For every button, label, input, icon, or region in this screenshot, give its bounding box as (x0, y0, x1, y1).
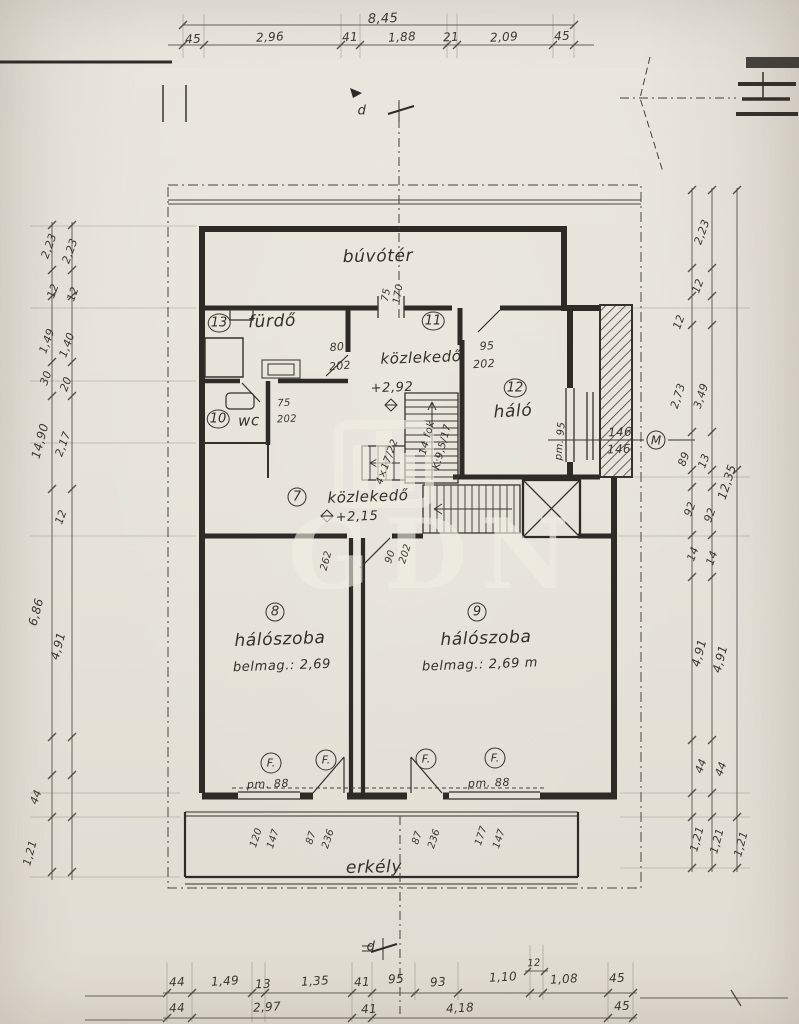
dim-right-10: 92 (702, 506, 717, 523)
room-buvoter-label: búvótér (343, 248, 414, 266)
plan-labels-layer: 8,45452,96411,88212,0945dd2,232,2312121,… (0, 0, 799, 1024)
room-13-number: 13 (208, 314, 231, 333)
dim-left-4: 12 (65, 285, 80, 302)
dim-262: 262 (320, 550, 335, 572)
room-9-label: hálószoba (440, 629, 532, 649)
window-marker-F-4: F. (485, 748, 506, 769)
level-mark-215: +2,15 (335, 510, 378, 524)
dim-right-3: 12 (671, 313, 686, 330)
door-95-width: 95 (479, 340, 494, 352)
dim-top-5: 21 (443, 31, 459, 44)
window-dim-147a: 147 (266, 828, 282, 850)
dim-right-19: 1,21 (732, 830, 749, 858)
dim-right-5: 3,49 (692, 382, 710, 410)
door-75-width: 75 (277, 399, 291, 410)
dim-left-5: 1,49 (37, 327, 56, 355)
dim-top-4: 1,88 (388, 30, 417, 43)
room-8-note: belmag.: 2,69 (233, 658, 332, 674)
dim-bottom1-5: 41 (354, 976, 370, 989)
dim-left-11: 12 (53, 508, 68, 525)
room-7-label: közlekedő (327, 488, 409, 506)
dim-top-6: 2,09 (490, 30, 519, 43)
dim-bottom1-6: 95 (388, 973, 404, 986)
room-7-number: 7 (288, 488, 307, 507)
shaft-dim-height: 170 (392, 283, 405, 304)
window-146-width: 146 (608, 426, 632, 439)
window-sill-88-right: pm. 88 (468, 777, 511, 789)
dim-left-12: 6,86 (27, 597, 46, 627)
dim-top-2: 2,96 (256, 30, 285, 43)
room-12-number: 12 (504, 379, 527, 398)
room-9-number: 9 (468, 603, 487, 622)
dim-bottom2-2: 2,97 (253, 1000, 282, 1013)
dim-right-8: 12,35 (716, 463, 738, 501)
dim-top-3: 41 (342, 31, 358, 44)
room-11-label: közlekedő (380, 349, 462, 367)
room-erkely-label: erkély (346, 859, 402, 877)
room-8-number: 8 (266, 603, 285, 622)
dim-left-7: 30 (38, 369, 53, 386)
window-marker-F-1: F. (261, 753, 282, 774)
dim-bottom2-4: 4,18 (446, 1001, 475, 1014)
dim-bottom2-1: 44 (169, 1002, 185, 1015)
scanned-floor-plan: GDN 8,45452,96411,88212,0945dd2,232,2312… (0, 0, 799, 1024)
window-dim-177: 177 (474, 825, 490, 847)
window-146-height: 146. (607, 443, 635, 456)
dim-left-13: 4,91 (49, 631, 68, 661)
dim-right-4: 2,73 (669, 382, 687, 410)
dim-bottom1-8: 1,10 (489, 970, 518, 983)
dim-left-9: 14,90 (30, 422, 51, 460)
dim-right-15: 44 (693, 757, 708, 774)
dim-bottom1-3: 13 (255, 978, 271, 991)
door-90-height: 202 (398, 543, 414, 565)
window-marker-M: M (647, 431, 666, 450)
window-sill-88-left: pm. 88 (247, 778, 290, 790)
dim-right-11: 14 (685, 545, 700, 562)
door-80-height: 202 (329, 360, 352, 373)
dim-right-6: 89 (676, 450, 691, 467)
window-marker-F-3: F. (416, 749, 437, 770)
dim-right-14: 4,91 (711, 644, 730, 674)
window-sill-95: pm. 95 (554, 421, 567, 461)
section-mark-bottom-letter: d (367, 941, 376, 954)
level-mark-292: +2,92 (370, 381, 413, 395)
room-11-number: 11 (422, 312, 445, 331)
door-dim-236b: 236 (427, 828, 443, 850)
door-95-height: 202 (473, 358, 495, 370)
dim-right-17: 1,21 (688, 825, 705, 853)
section-mark-top-letter: d (358, 105, 367, 118)
dim-bottom2-5: 45 (614, 1000, 630, 1013)
window-marker-F-2: F. (316, 750, 337, 771)
room-10-number: 10 (207, 410, 230, 429)
door-dim-236a: 236 (321, 828, 337, 850)
dim-right-12: 14 (704, 549, 719, 566)
dim-right-9: 92 (682, 500, 697, 517)
door-75-height: 202 (277, 414, 297, 425)
window-dim-147b: 147 (492, 828, 508, 850)
dim-left-2: 2,23 (60, 237, 79, 265)
door-90-width: 90 (384, 549, 398, 565)
room-13-label: fürdő (248, 313, 297, 332)
dim-left-10: 2,17 (53, 430, 72, 458)
dim-left-6: 1,40 (57, 331, 76, 359)
stair-small-note: 4×17/22 (375, 438, 401, 486)
room-10-label: wc (238, 413, 260, 429)
dim-right-16: 44 (713, 760, 728, 777)
dim-right-1: 2,23 (692, 218, 711, 246)
door-80-width: 80 (329, 341, 345, 353)
dim-bottom1-10: 1,08 (550, 972, 579, 985)
dim-right-2: 12 (690, 277, 705, 294)
room-9-note: belmag.: 2,69 m (422, 656, 539, 673)
room-8-label: hálószoba (234, 630, 326, 650)
dim-top-7: 45 (554, 30, 570, 43)
dim-bottom2-3: 41 (361, 1003, 377, 1016)
room-12-label: háló (493, 402, 533, 421)
dim-left-1: 2,23 (39, 232, 58, 260)
dim-bottom1-7: 93 (430, 976, 446, 989)
dim-bottom1-11: 45 (609, 972, 625, 985)
dim-left-8: 20 (58, 375, 73, 392)
dim-top-total: 8,45 (368, 12, 399, 26)
dim-left-15: 1,21 (21, 839, 38, 867)
dim-bottom1-2: 1,49 (211, 974, 240, 987)
dim-left-14: 44 (28, 788, 43, 805)
window-dim-120: 120 (249, 827, 265, 849)
dim-right-7: 13 (696, 452, 711, 469)
dim-right-18: 1,21 (708, 827, 725, 855)
dim-left-3: 12 (45, 282, 60, 299)
dim-bottom1-1: 44 (169, 976, 185, 989)
stair-upper-note: K:9,5/17 (432, 423, 454, 471)
door-dim-87b: 87 (411, 830, 425, 846)
dim-bottom1-9: 12 (527, 959, 541, 970)
dim-top-1: 45 (185, 33, 201, 46)
dim-bottom1-4: 1,35 (301, 974, 330, 987)
door-dim-87a: 87 (305, 830, 319, 846)
dim-right-13: 4,91 (690, 638, 709, 668)
